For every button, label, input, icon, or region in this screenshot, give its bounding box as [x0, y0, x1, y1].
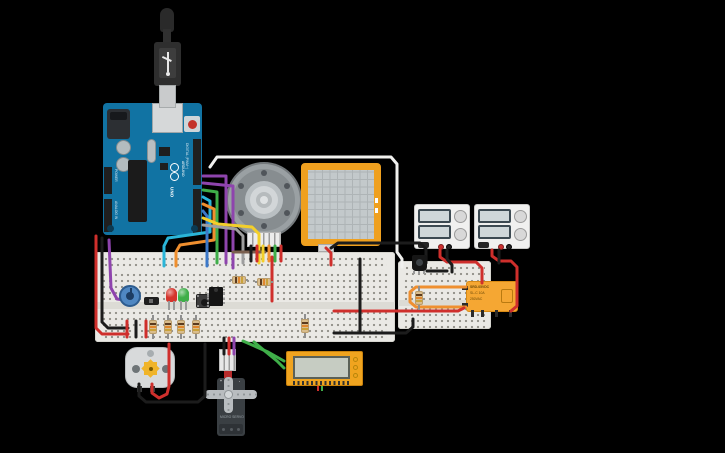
- wire-layer: [0, 0, 725, 453]
- wire-red-fsr[interactable]: [326, 248, 331, 265]
- wire-orange-relay-loop[interactable]: [410, 287, 466, 307]
- wire-green-lcd-2[interactable]: [254, 342, 284, 368]
- wire-purple-analog[interactable]: [109, 240, 132, 301]
- wire-black-fsr[interactable]: [331, 243, 426, 263]
- circuit-canvas: ARDUINO UNO DIGITAL (PWM~) POWER ANALOG …: [0, 0, 725, 453]
- wire-black-power-left[interactable]: [102, 238, 128, 328]
- wire-red-psu2[interactable]: [492, 250, 517, 311]
- wire-red-motor[interactable]: [152, 344, 169, 398]
- wire-black-minibb-main[interactable]: [334, 319, 413, 333]
- wire-cyan-d[interactable]: [164, 197, 210, 266]
- wire-black-motor[interactable]: [139, 344, 205, 402]
